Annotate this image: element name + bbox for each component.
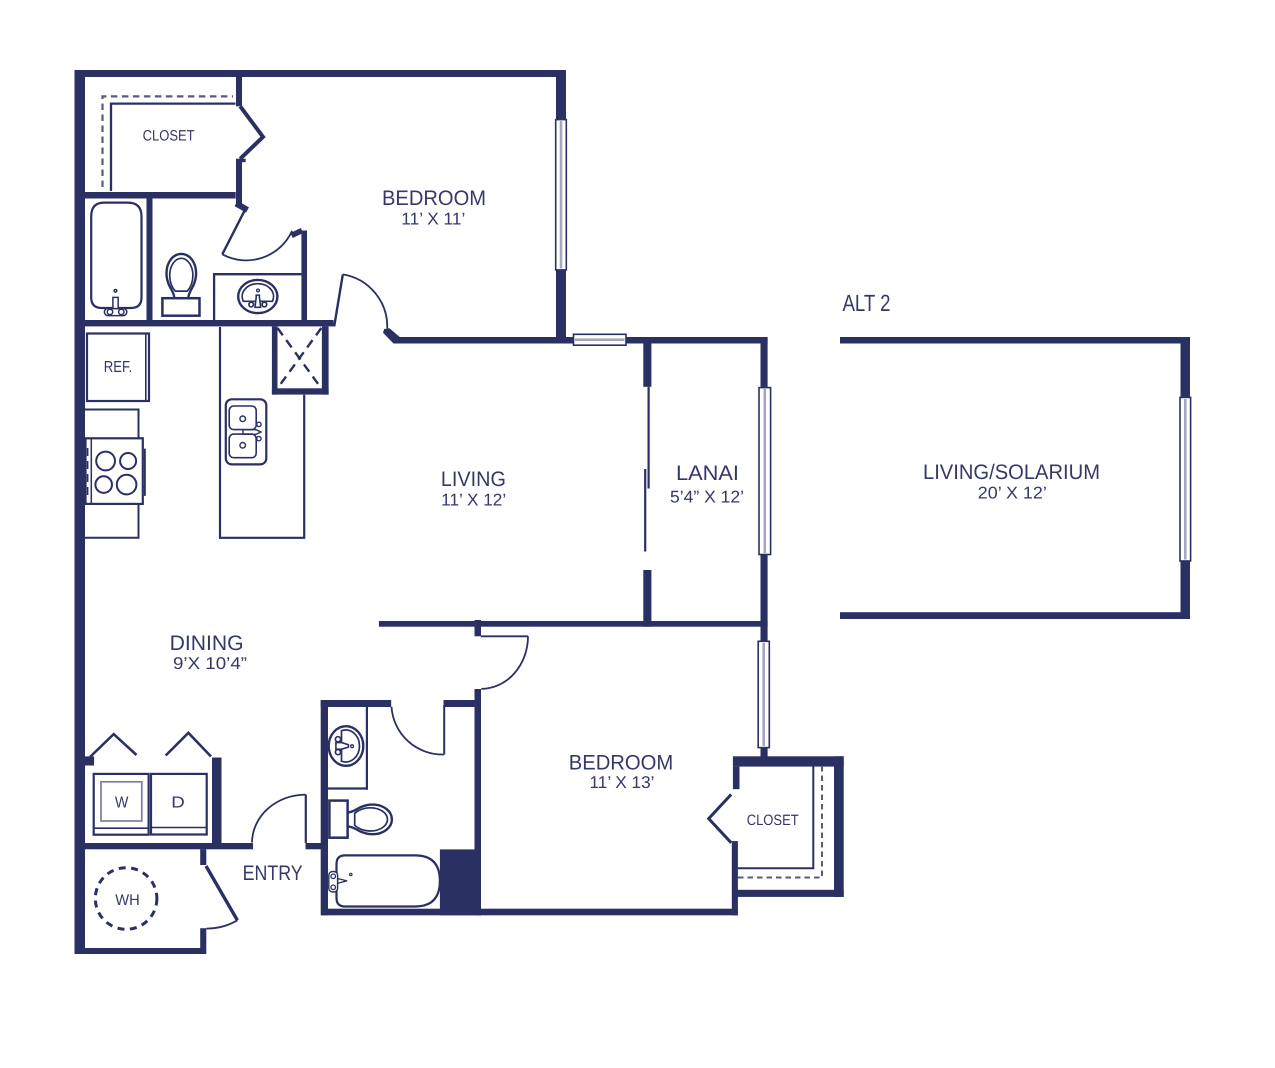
- svg-text:CLOSET: CLOSET: [143, 128, 195, 145]
- svg-text:LIVING: LIVING: [441, 468, 506, 491]
- svg-text:9’X 10’4”: 9’X 10’4”: [173, 654, 247, 673]
- svg-text:WH: WH: [115, 892, 140, 909]
- svg-text:11’ X 11’: 11’ X 11’: [401, 210, 465, 229]
- svg-text:W: W: [115, 795, 129, 812]
- svg-text:DINING: DINING: [170, 632, 244, 655]
- svg-text:CLOSET: CLOSET: [747, 812, 799, 829]
- svg-text:11’ X 12’: 11’ X 12’: [441, 491, 506, 510]
- svg-text:ALT 2: ALT 2: [843, 290, 891, 316]
- svg-text:BEDROOM: BEDROOM: [569, 751, 674, 774]
- svg-text:LIVING/SOLARIUM: LIVING/SOLARIUM: [923, 461, 1100, 484]
- svg-text:D: D: [171, 794, 185, 811]
- svg-text:ENTRY: ENTRY: [243, 862, 303, 885]
- svg-text:REF.: REF.: [104, 359, 133, 376]
- svg-text:LANAI: LANAI: [676, 462, 739, 485]
- svg-text:5’4” X 12’: 5’4” X 12’: [670, 488, 744, 507]
- svg-text:BEDROOM: BEDROOM: [382, 187, 486, 210]
- svg-text:20’ X 12’: 20’ X 12’: [978, 484, 1047, 503]
- svg-text:11’ X 13’: 11’ X 13’: [590, 773, 655, 792]
